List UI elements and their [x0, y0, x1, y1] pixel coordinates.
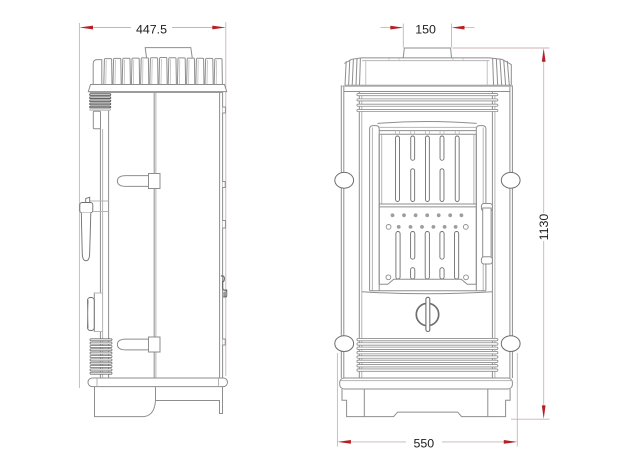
- svg-text:447.5: 447.5: [136, 22, 167, 36]
- svg-text:150: 150: [415, 22, 436, 36]
- svg-text:1130: 1130: [537, 214, 551, 241]
- svg-text:550: 550: [413, 436, 434, 450]
